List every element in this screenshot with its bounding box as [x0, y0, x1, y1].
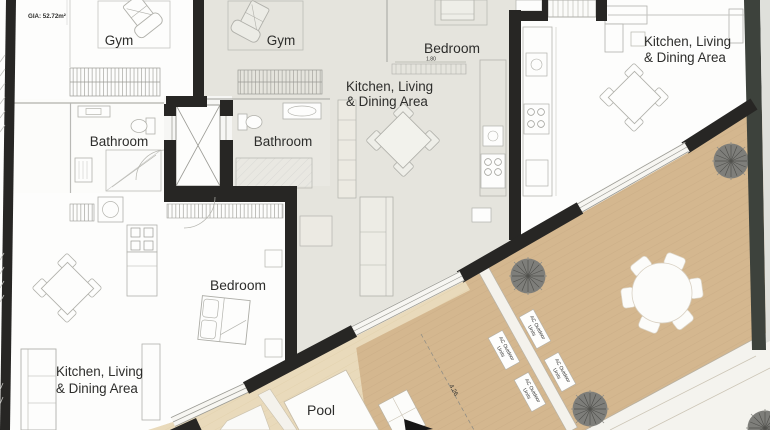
- svg-text:Kitchen, Living: Kitchen, Living: [346, 79, 433, 94]
- svg-text:Gym: Gym: [267, 33, 296, 48]
- svg-text:& Dining Area: & Dining Area: [346, 94, 428, 109]
- svg-text:Pool: Pool: [307, 402, 335, 418]
- svg-text:Kitchen, Living: Kitchen, Living: [644, 34, 731, 49]
- svg-text:Gym: Gym: [105, 33, 134, 48]
- svg-text:Kitchen, Living: Kitchen, Living: [56, 364, 143, 379]
- svg-text:Bedroom: Bedroom: [424, 41, 480, 56]
- svg-text:GIA: 52.72m²: GIA: 52.72m²: [28, 13, 66, 20]
- svg-text:& Dining Area: & Dining Area: [56, 381, 138, 396]
- svg-text:& Dining Area: & Dining Area: [644, 50, 726, 65]
- svg-text:Bathroom: Bathroom: [254, 134, 313, 149]
- svg-text:Bedroom: Bedroom: [210, 278, 266, 293]
- svg-text:1.80: 1.80: [426, 57, 436, 63]
- svg-text:Bathroom: Bathroom: [90, 134, 149, 149]
